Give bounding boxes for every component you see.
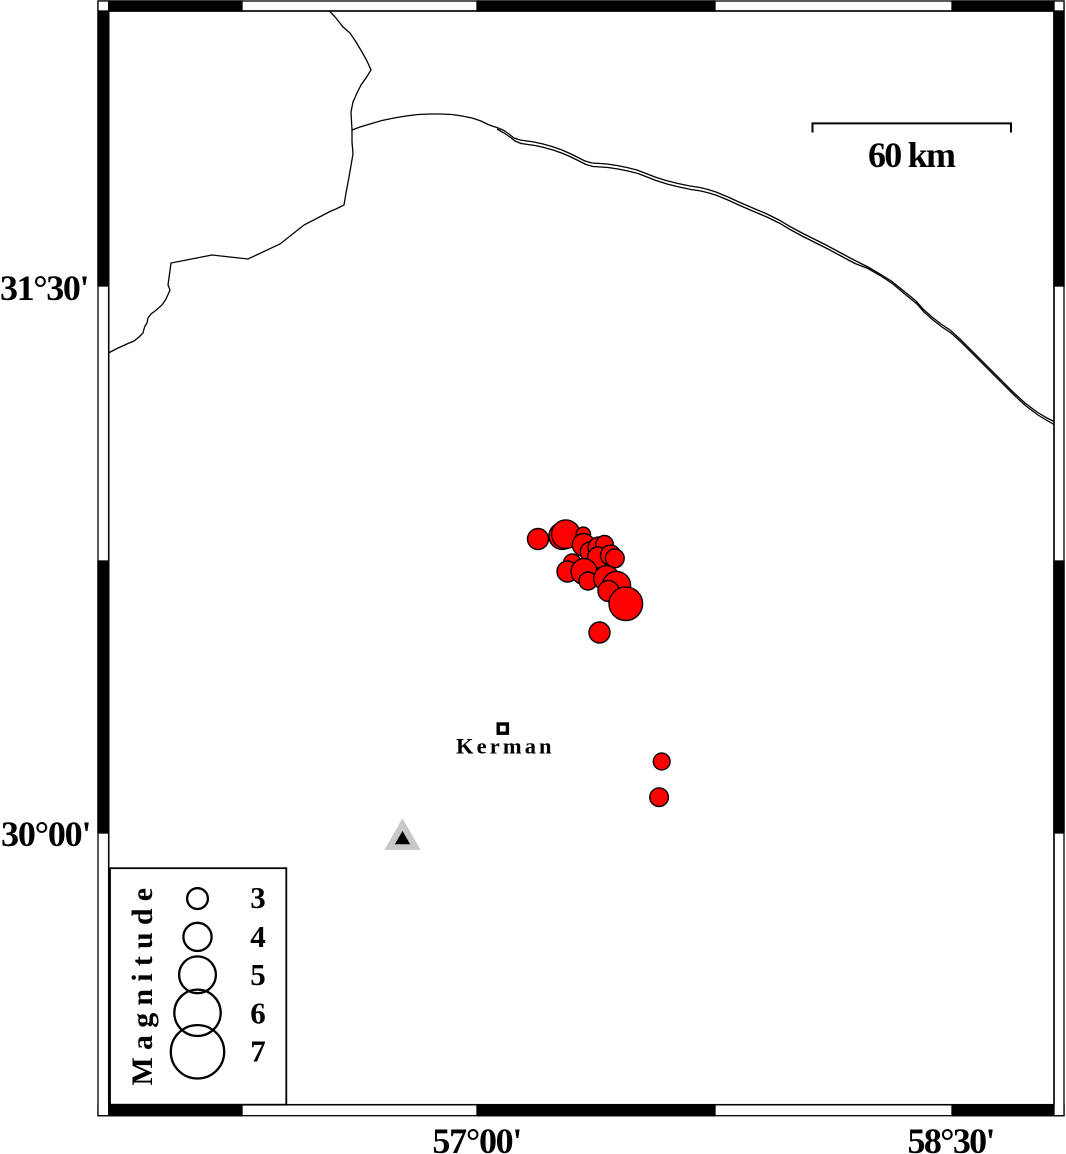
- svg-text:57°00': 57°00': [432, 1121, 522, 1154]
- svg-text:60 km: 60 km: [868, 135, 956, 175]
- svg-text:3: 3: [250, 880, 266, 915]
- svg-text:6: 6: [250, 996, 266, 1031]
- svg-text:31°30': 31°30': [0, 268, 90, 308]
- svg-text:5: 5: [250, 957, 266, 992]
- svg-text:4: 4: [250, 919, 266, 954]
- svg-text:Magnitude: Magnitude: [126, 881, 159, 1086]
- svg-text:58°30': 58°30': [908, 1121, 996, 1154]
- svg-text:30°00': 30°00': [1, 814, 92, 854]
- svg-text:7: 7: [250, 1034, 266, 1069]
